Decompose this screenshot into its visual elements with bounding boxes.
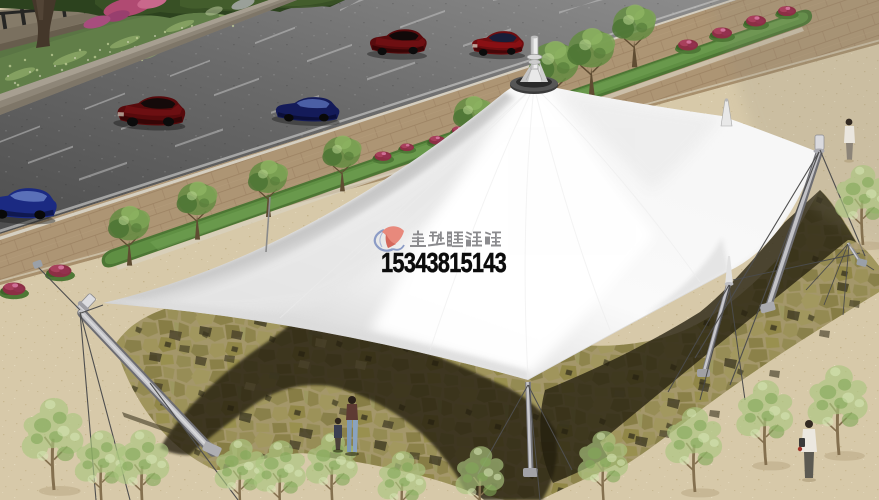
svg-text:15343815143: 15343815143	[381, 247, 507, 278]
